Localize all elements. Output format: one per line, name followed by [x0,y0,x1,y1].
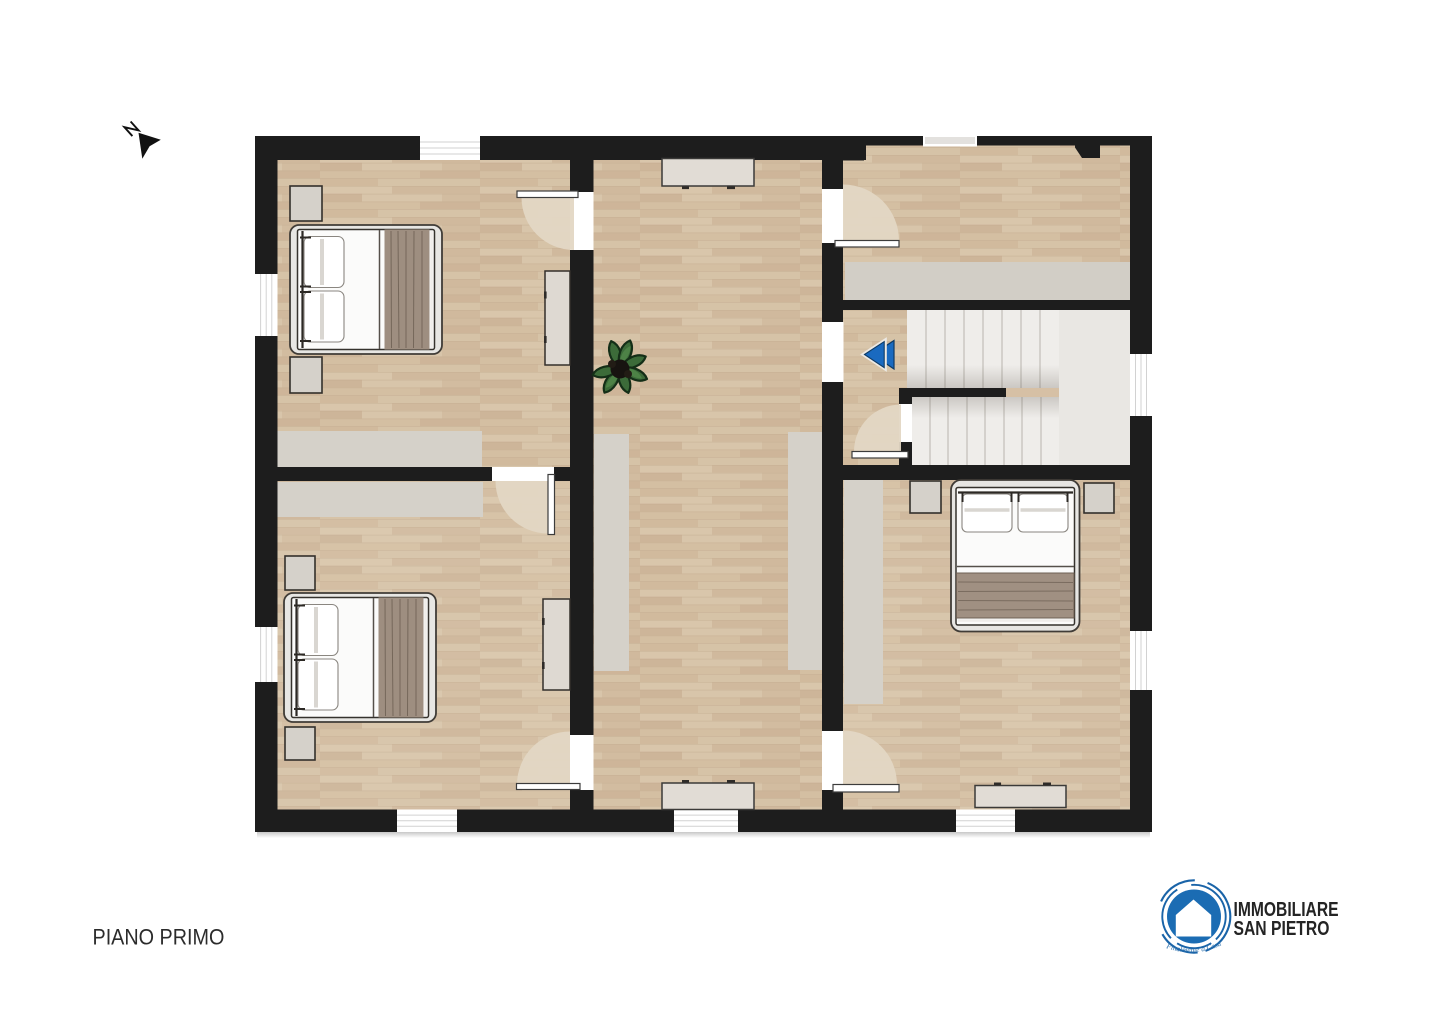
svg-text:PIANO PRIMO: PIANO PRIMO [93,926,225,950]
svg-text:SAN PIETRO: SAN PIETRO [1234,916,1330,940]
